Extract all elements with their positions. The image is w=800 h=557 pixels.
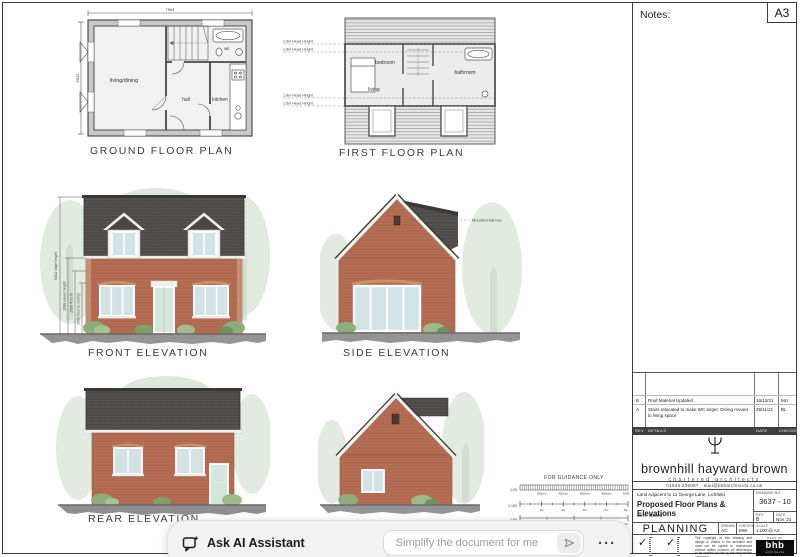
rear-elevation-drawing [56, 368, 270, 518]
drawing-sheet: 7904 5532 [0, 0, 800, 557]
bath-symbol [465, 48, 492, 60]
scale-tick: 3m [583, 508, 588, 512]
ai-assistant-bar[interactable]: Ask AI Assistant ··· [167, 520, 631, 557]
send-icon [563, 537, 575, 549]
dim-eaves-height: 3088 eaves height [63, 281, 67, 310]
ground-floor-plan-drawing: 7904 5532 [60, 4, 260, 162]
drawn-value: AC [721, 528, 734, 533]
checked-value: MW [739, 528, 751, 533]
scale-label: 1:20 [510, 488, 517, 492]
first-floor-plan-title: FIRST FLOOR PLAN [339, 147, 464, 159]
drawing-no: 3637 - 10 [756, 497, 794, 506]
rev-checked: MU [781, 398, 788, 404]
window [174, 445, 206, 476]
title-block-footer: ✓ ✓ The copyright of this drawing and de… [633, 534, 796, 555]
first-floor-plan-drawing: 1.5m Head Height 1.8m Head Height 1.8m H… [281, 6, 499, 156]
scale-tick: 600mm [580, 492, 590, 496]
firm-block: brownhill hayward brown chartered archit… [633, 434, 796, 481]
rev-letter: B [636, 398, 639, 404]
rev-details: Roof Material Updated [648, 398, 752, 404]
bat-box [394, 216, 400, 225]
revision-table: B Roof Material Updated 16/12/21 MU A St… [633, 372, 796, 434]
side-elevation-title: SIDE ELEVATION [343, 347, 450, 359]
qr-icon [677, 537, 679, 556]
dim-ridge-height: 6381 ridge height [54, 252, 58, 280]
scale-value: 1:100 @ A3 [756, 528, 794, 533]
head-height-label: 1.5m Head Height [283, 40, 313, 44]
bhb-logo: bhb architects [756, 540, 794, 556]
gable-vent [392, 414, 399, 424]
rev-details: Stairs relocated to make WC larger. Dini… [648, 407, 752, 418]
bat-box-annotation: Mounted bat box [472, 218, 502, 223]
revision-row: A Stairs relocated to make WC larger. Di… [633, 404, 796, 421]
kitchen-fixtures [230, 64, 246, 130]
scale-tick: 2m [561, 508, 566, 512]
rev-checked: BL [781, 407, 787, 413]
front-elevation-drawing: 6381 ridge height 3088 eaves height 2500… [36, 170, 270, 354]
french-doors [352, 281, 422, 331]
more-options-button[interactable]: ··· [598, 535, 616, 552]
scale-tick: 800mm [602, 492, 612, 496]
approval-check: ✓ [666, 538, 697, 557]
ask-ai-label: Ask AI Assistant [207, 536, 305, 550]
front-door [151, 281, 177, 336]
rev-date: 16/12/21 [756, 398, 774, 404]
send-button[interactable] [557, 533, 581, 553]
plan-width-dim: 7904 [166, 7, 176, 12]
room-label-hall: hall [182, 97, 190, 103]
room-label-wc: wc [224, 46, 230, 51]
copyright-note: The copyright of this drawing and design… [695, 537, 752, 557]
scale-tick: 4m [604, 508, 609, 512]
approval-check: ✓ [638, 538, 669, 557]
dim-ffl: 2500 ffl to ffl [70, 293, 74, 313]
room-label-living: living [368, 87, 380, 93]
checkmark-icon: ✓ [638, 538, 647, 549]
room-label-bedroom: bedroom [375, 60, 395, 66]
scale-bar-title: FOR GUIDANCE ONLY [544, 475, 604, 481]
head-height-label: 1.5m Head Height [283, 102, 313, 106]
scale-tick: 1m [540, 508, 545, 512]
drawing-no-label: DRAWING NO. [756, 491, 794, 495]
firm-logo-icon [703, 436, 727, 456]
window [112, 445, 144, 476]
project-address: Land Adjacent to 11 George Lane, Lichfie… [637, 492, 749, 497]
ai-prompt-input[interactable] [383, 530, 584, 556]
head-height-label: 1.8m Head Height [283, 94, 313, 98]
checkmark-icon: ✓ [666, 538, 675, 549]
chat-icon [182, 535, 199, 552]
room-label-bathroom: bathroom [454, 70, 475, 76]
scale-label: 1:100 [508, 504, 517, 508]
rev-date: 29/11/21 [756, 407, 773, 413]
dim-floor-ceiling: 2050 floor to ceiling [77, 293, 81, 324]
revision-row: B Roof Material Updated 16/12/21 MU [633, 395, 796, 404]
head-height-label: 1.8m Head Height [283, 48, 313, 52]
rear-side-elevation-drawing [318, 372, 484, 518]
qr-icon [649, 537, 651, 556]
scale-tick: 200mm [537, 492, 547, 496]
window [98, 283, 136, 319]
firm-name: brownhill hayward brown [633, 462, 796, 476]
ask-ai-button[interactable]: Ask AI Assistant [182, 535, 305, 552]
scale-tick: 1000 [623, 492, 630, 496]
client-name: Mr A. Sansra [637, 513, 662, 518]
sheet-size-badge: A3 [767, 3, 796, 23]
window [362, 470, 384, 492]
room-label-kitchen: kitchen [212, 97, 228, 103]
front-elevation-title: FRONT ELEVATION [88, 347, 208, 359]
rev-letter: A [636, 407, 639, 413]
plan-height-dim: 5532 [75, 73, 80, 83]
scale-tick: 5m [624, 508, 629, 512]
room-label-living: living/dining [110, 78, 138, 84]
side-elevation-drawing: Mounted bat box [320, 182, 524, 354]
window [192, 283, 230, 319]
scale-tick: 400mm [558, 492, 568, 496]
ground-floor-plan-title: GROUND FLOOR PLAN [90, 145, 233, 157]
notes-label: Notes: [640, 9, 670, 21]
